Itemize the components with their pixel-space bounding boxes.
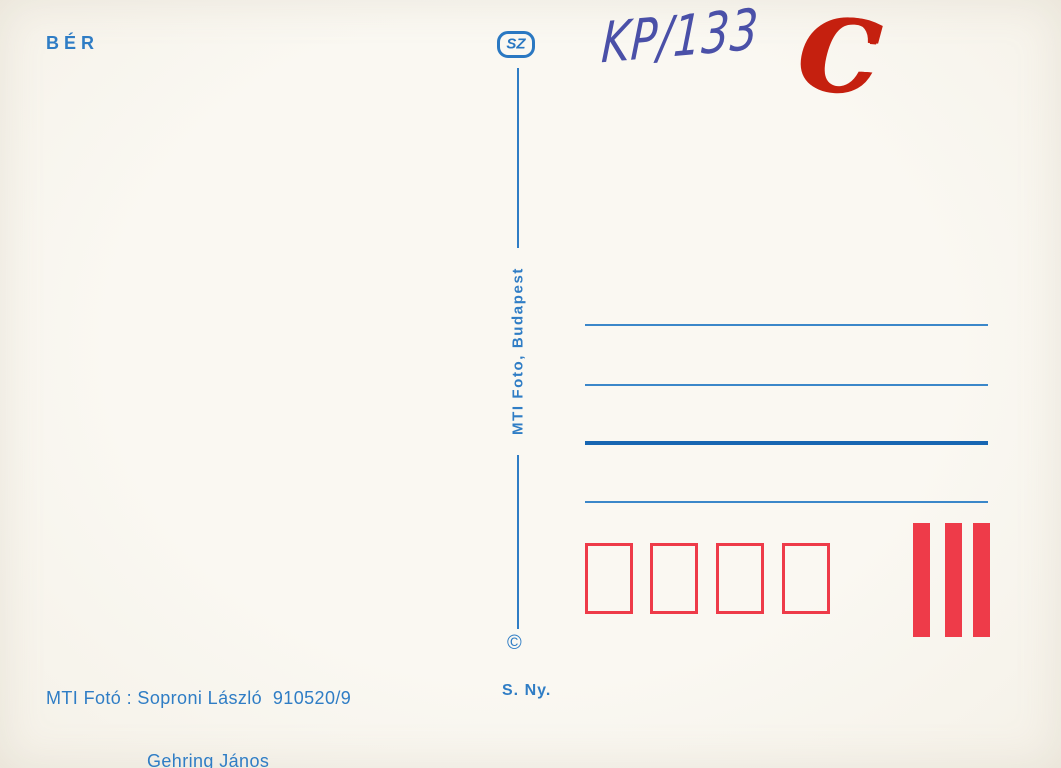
- postcard-back: BÉR SZ KP/133 C MTI Foto, Budapest © S. …: [0, 0, 1061, 768]
- divider-line-bottom: [517, 455, 519, 629]
- postal-code-box-1: [585, 543, 633, 614]
- copyright-symbol: ©: [507, 632, 522, 655]
- address-line-1: [585, 324, 988, 326]
- photo-credits-line-1: MTI Fotó : Soproni László 910520/9: [46, 688, 351, 709]
- postal-code-box-3: [716, 543, 764, 614]
- address-line-3-thick: [585, 441, 988, 445]
- photo-credits: MTI Fotó : Soproni László 910520/9 Gehri…: [46, 646, 351, 768]
- vertical-imprint: MTI Foto, Budapest: [510, 267, 527, 435]
- handwritten-archive-number: KP/133: [600, 2, 760, 72]
- divider-line-top: [517, 68, 519, 248]
- postcard-title: BÉR: [46, 33, 99, 54]
- postal-code-box-4: [782, 543, 830, 614]
- franking-bar-1: [913, 523, 930, 637]
- franking-bar-2: [945, 523, 962, 637]
- address-line-4: [585, 501, 988, 503]
- franking-bar-3: [973, 523, 990, 637]
- publisher-logo: SZ: [497, 31, 535, 58]
- postal-code-box-2: [650, 543, 698, 614]
- handwritten-category-letter: C: [797, 3, 883, 108]
- address-line-2: [585, 384, 988, 386]
- photo-credits-line-2: Gehring János: [147, 751, 351, 768]
- printer-mark: S. Ny.: [502, 682, 551, 700]
- publisher-logo-text: SZ: [506, 36, 525, 53]
